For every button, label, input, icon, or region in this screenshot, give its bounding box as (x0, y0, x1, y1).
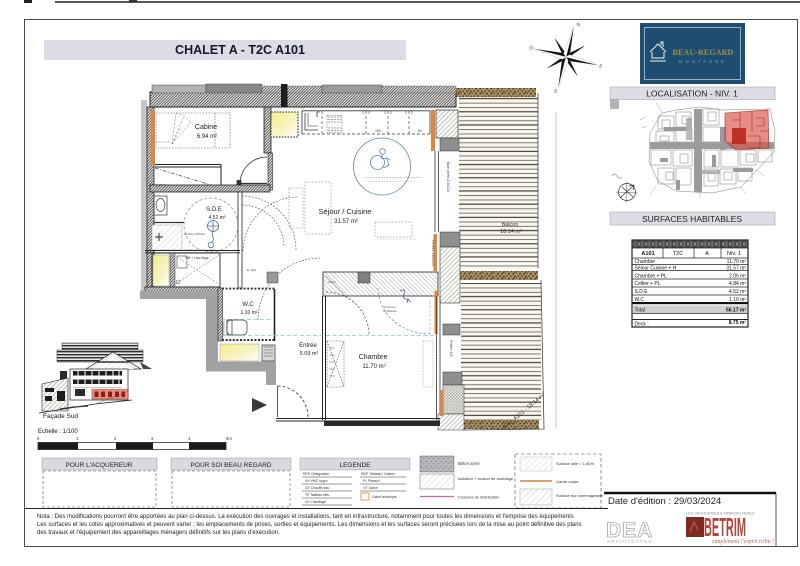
svg-text:Surface utile > 1.80m: Surface utile > 1.80m (556, 461, 595, 466)
svg-text:Chambre + PL: Chambre + PL (635, 274, 668, 280)
svg-text:LEGENDE: LEGENDE (339, 462, 371, 469)
svg-text:Baie vitrée 215x215: Baie vitrée 215x215 (446, 162, 450, 192)
svg-text:Fenêtre 125x105: Fenêtre 125x105 (431, 240, 435, 266)
svg-text:3: 3 (151, 436, 154, 441)
svg-text:REP. Désignation: REP. Désignation (303, 472, 329, 476)
svg-text:4: 4 (188, 436, 191, 441)
svg-text:W.C: W.C (242, 302, 254, 308)
svg-text:VH VMC hygro: VH VMC hygro (305, 479, 328, 483)
svg-text:douche 120x90: douche 120x90 (184, 232, 205, 236)
svg-text:1.10 m²: 1.10 m² (241, 310, 258, 316)
svg-text:2: 2 (114, 436, 117, 441)
svg-text:Cellier + PL: Cellier + PL (635, 281, 661, 287)
svg-text:Séjour Cuisine + H: Séjour Cuisine + H (635, 266, 677, 272)
svg-text:Cloisons de distribution: Cloisons de distribution (458, 495, 499, 500)
svg-text:des travaux et l'équipement de: des travaux et l'équipement des appareil… (37, 530, 280, 536)
svg-text:Séjour / Cuisine: Séjour / Cuisine (319, 207, 372, 216)
svg-text:1: 1 (76, 436, 79, 441)
svg-text:18.14 m²: 18.14 m² (500, 229, 522, 235)
svg-text:S.D.E: S.D.E (635, 289, 649, 295)
svg-text:SURFACES HABITABLES: SURFACES HABITABLES (642, 214, 742, 224)
svg-text:31.57 m²: 31.57 m² (726, 266, 746, 272)
svg-text:W.C: W.C (635, 297, 645, 303)
svg-text:E. Rés.: E. Rés. (247, 268, 257, 272)
svg-text:8.75 m²: 8.75 m² (729, 320, 747, 326)
svg-text:Deck :: Deck : (635, 322, 649, 328)
svg-text:Echelle : 1/100: Echelle : 1/100 (38, 429, 78, 435)
svg-text:56.17 m²: 56.17 m² (726, 308, 746, 314)
svg-text:A101: A101 (641, 251, 654, 257)
svg-text:2.05 m²: 2.05 m² (729, 274, 746, 280)
svg-text:5m: 5m (226, 436, 232, 441)
svg-text:Les surfaces et les cotes appr: Les surfaces et les cotes approximatives… (37, 522, 582, 528)
svg-text:PL Placard: PL Placard (363, 479, 380, 483)
svg-text:REP. Tableau / Gaines: REP. Tableau / Gaines (361, 472, 395, 476)
svg-text:Isolation + cloison de doublag: Isolation + cloison de doublage (458, 476, 514, 481)
svg-text:Total: Total (635, 308, 646, 314)
svg-text:11.70 m²: 11.70 m² (727, 259, 747, 265)
svg-text:S: S (553, 88, 557, 94)
svg-text:emprise fauteuil roulant: emprise fauteuil roulant (184, 248, 215, 252)
svg-text:Balcon: Balcon (502, 222, 519, 228)
svg-text:Ch Chauffage: Ch Chauffage (305, 500, 326, 504)
svg-text:simplement l'esprit tribu !: simplement l'esprit tribu ! (712, 539, 774, 545)
svg-text:POUR L'ACQUEREUR: POUR L'ACQUEREUR (66, 462, 133, 469)
svg-text:Chambre: Chambre (359, 354, 388, 361)
svg-text:lit abaissé: lit abaissé (383, 309, 397, 313)
svg-text:MONTAGNE: MONTAGNE (679, 59, 727, 64)
svg-text:Fenêtre 125: Fenêtre 125 (449, 340, 453, 357)
svg-text:150: 150 (375, 129, 381, 133)
svg-text:O: O (529, 45, 534, 51)
svg-text:4.84 m²: 4.84 m² (729, 281, 746, 287)
svg-text:POUR SOI BEAU REGARD: POUR SOI BEAU REGARD (191, 462, 272, 469)
svg-text:ARCHITECTES: ARCHITECTES (607, 539, 653, 544)
svg-text:LOCALISATION - NIV. 1: LOCALISATION - NIV. 1 (646, 89, 738, 99)
svg-text:Nota : Des modifications pourr: Nota : Des modifications pourront être a… (37, 514, 574, 520)
svg-text:4.52 m²: 4.52 m² (729, 289, 746, 295)
svg-text:11.70 m²: 11.70 m² (362, 364, 385, 370)
svg-text:Garde-corps: Garde-corps (556, 479, 578, 484)
svg-text:4.52 m²: 4.52 m² (209, 215, 226, 221)
svg-text:1.10 m²: 1.10 m² (729, 297, 746, 303)
svg-text:Date d'édition : 29/03/2024: Date d'édition : 29/03/2024 (608, 496, 721, 507)
svg-text:Béton armé: Béton armé (458, 461, 480, 466)
svg-text:BEAU-REGARD: BEAU-REGARD (673, 48, 734, 57)
svg-text:Cabine: Cabine (195, 124, 217, 131)
svg-text:CE Chauffe-eau: CE Chauffe-eau (305, 486, 329, 490)
svg-text:TE Tableau élec.: TE Tableau élec. (305, 493, 330, 497)
svg-text:Niv. 1: Niv. 1 (727, 251, 741, 257)
svg-text:S.D.E: S.D.E (206, 207, 222, 213)
svg-text:E: E (599, 63, 603, 69)
svg-text:60: 60 (418, 129, 422, 133)
svg-text:GT Gaine: GT Gaine (363, 486, 378, 490)
svg-text:0: 0 (37, 436, 40, 441)
svg-text:Surface non aménageable: Surface non aménageable (556, 493, 604, 498)
svg-text:5.09 m²: 5.09 m² (300, 351, 319, 357)
svg-text:Façade Sud: Façade Sud (43, 413, 78, 420)
svg-text:4.2m³: 4.2m³ (328, 280, 336, 284)
svg-text:N: N (576, 22, 580, 28)
svg-text:Gaine technique: Gaine technique (372, 495, 397, 499)
svg-text:lave-mains: lave-mains (222, 321, 226, 336)
svg-text:T2C: T2C (673, 251, 684, 257)
svg-text:Entrée: Entrée (299, 343, 317, 349)
svg-text:A: A (705, 251, 709, 257)
svg-text:BETRIM: BETRIM (704, 512, 746, 542)
svg-text:31.57 m²: 31.57 m² (334, 219, 358, 225)
svg-text:Réf + Lave-linge: Réf + Lave-linge (185, 256, 209, 260)
svg-text:Chambre: Chambre (635, 259, 656, 265)
svg-text:6.94 m²: 6.94 m² (197, 134, 217, 140)
